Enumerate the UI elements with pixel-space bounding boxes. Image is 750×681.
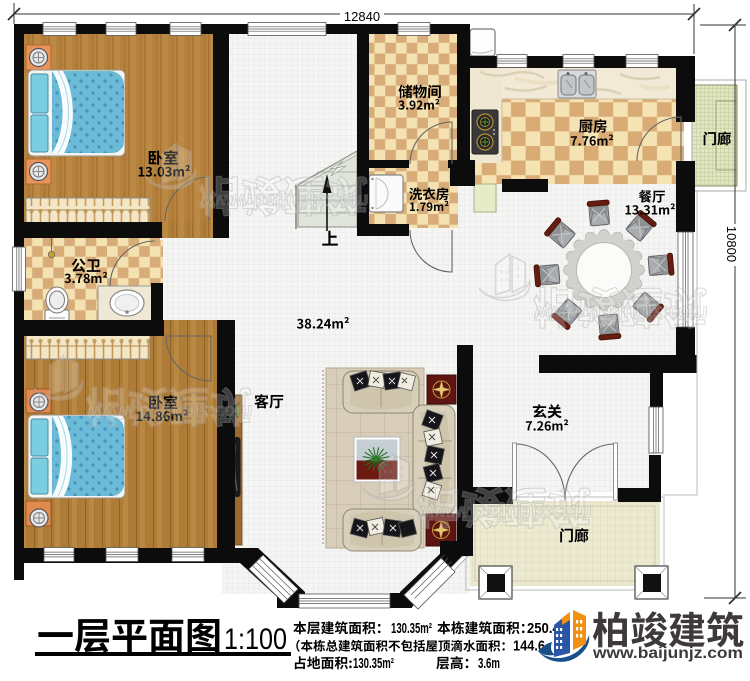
svg-text:130.35m²: 130.35m² xyxy=(391,621,432,637)
svg-text:10800: 10800 xyxy=(724,226,739,262)
svg-text:www.baijunjz.com: www.baijunjz.com xyxy=(592,645,743,662)
svg-text:1:100: 1:100 xyxy=(224,623,287,656)
svg-text:130.35m²: 130.35m² xyxy=(353,656,394,672)
svg-text:12840: 12840 xyxy=(344,9,380,24)
svg-text:3.6m: 3.6m xyxy=(478,656,500,672)
